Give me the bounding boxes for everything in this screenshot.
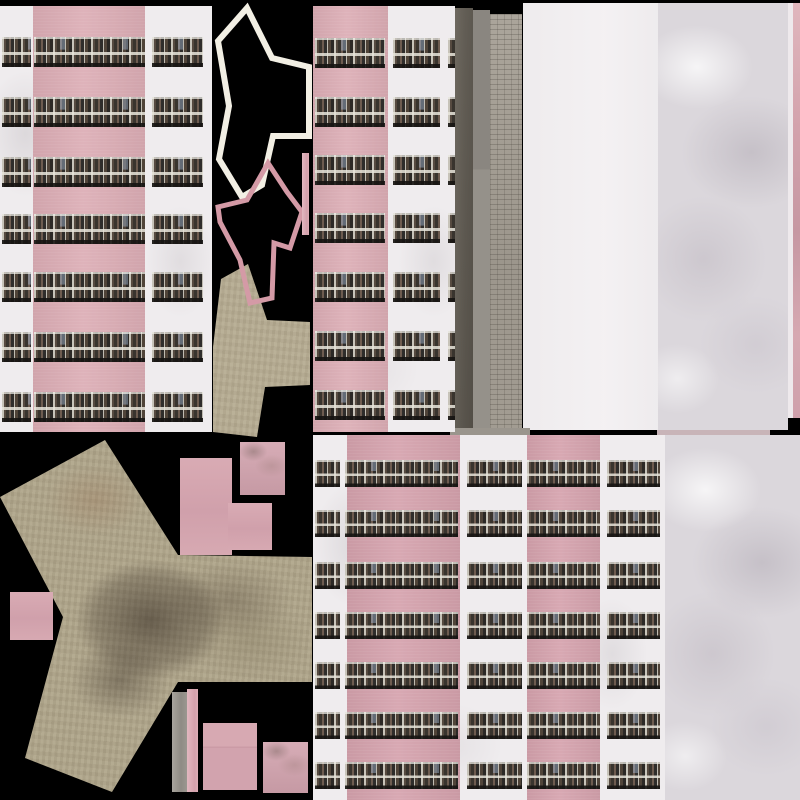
facade-middle-window-strip-r3-c1: [315, 155, 385, 185]
facade-bottom-window-strip-r2-c2: [345, 510, 458, 537]
marble-panel-top-right: [658, 3, 788, 430]
facade-bottom-window-strip-r2-c5: [607, 510, 660, 537]
facade-bottom-window-strip-r6-c2: [345, 712, 458, 739]
pink-rect-4: [10, 592, 53, 640]
facade-bottom-window-strip-r2-c3: [467, 510, 522, 537]
facade-bottom-window-strip-r1-c1: [315, 460, 340, 487]
facade-middle-window-strip-r3-c3: [448, 155, 455, 185]
facade-middle-window-strip-r6-c3: [448, 331, 455, 361]
facade-bottom-window-strip-r4-c5: [607, 612, 660, 639]
pink-edge-strip: [793, 3, 800, 418]
facade-bottom-window-strip-r5-c3: [467, 662, 522, 689]
facade-bottom-window-strip-r1-c5: [607, 460, 660, 487]
facade-left-window-strip-r6-c1: [2, 332, 31, 362]
facade-left-window-strip-r3-c2: [34, 157, 145, 187]
facade-bottom-window-strip-r1-c2: [345, 460, 458, 487]
facade-left-window-strip-r7-c1: [2, 392, 31, 422]
facade-left-window-strip-r5-c1: [2, 272, 31, 302]
facade-left-window-strip-r4-c2: [34, 214, 145, 244]
facade-left-window-strip-r1-c1: [2, 37, 31, 67]
facade-bottom-window-strip-r5-c5: [607, 662, 660, 689]
facade-bottom-window-strip-r3-c5: [607, 562, 660, 589]
pink-rect-1: [180, 458, 232, 555]
facade-middle-window-strip-r2-c2: [393, 97, 440, 127]
facade-bottom-window-strip-r3-c3: [467, 562, 522, 589]
facade-bottom-window-strip-r3-c1: [315, 562, 340, 589]
facade-middle: [313, 6, 455, 432]
facade-middle-window-strip-r2-c1: [315, 97, 385, 127]
gray-bar-bottom: [172, 692, 187, 792]
facade-middle-window-strip-r7-c3: [448, 390, 455, 420]
white-slab-panel: [523, 3, 658, 430]
facade-left-window-strip-r3-c1: [2, 157, 31, 187]
facade-bottom-window-strip-r6-c3: [467, 712, 522, 739]
pink-sliver-top: [657, 430, 770, 435]
facade-bottom-window-strip-r4-c3: [467, 612, 522, 639]
facade-middle-window-strip-r5-c2: [393, 272, 440, 302]
facade-middle-window-strip-r6-c2: [393, 331, 440, 361]
pink-rect-2: [240, 442, 285, 495]
facade-bottom-window-strip-r2-c1: [315, 510, 340, 537]
marble-panel-bottom-right: [665, 435, 800, 800]
facade-bottom-window-strip-r4-c1: [315, 612, 340, 639]
facade-bottom-window-strip-r5-c1: [315, 662, 340, 689]
facade-bottom-window-strip-r7-c1: [315, 762, 340, 789]
facade-left-window-strip-r4-c3: [152, 214, 203, 244]
facade-bottom-window-strip-r4-c4: [527, 612, 600, 639]
facade-bottom: [313, 435, 665, 800]
facade-bottom-window-strip-r7-c5: [607, 762, 660, 789]
facade-left-window-strip-r1-c2: [34, 37, 145, 67]
facade-bottom-window-strip-r7-c4: [527, 762, 600, 789]
facade-bottom-window-strip-r7-c3: [467, 762, 522, 789]
texture-atlas-canvas: [0, 0, 800, 800]
facade-left-window-strip-r7-c3: [152, 392, 203, 422]
facade-middle-window-strip-r3-c2: [393, 155, 440, 185]
gray-strip-smooth: [455, 8, 473, 430]
facade-bottom-window-strip-r6-c5: [607, 712, 660, 739]
facade-left-window-strip-r5-c2: [34, 272, 145, 302]
facade-bottom-window-strip-r6-c4: [527, 712, 600, 739]
facade-middle-window-strip-r7-c1: [315, 390, 385, 420]
gray-strip-dark: [473, 10, 490, 430]
facade-middle-window-strip-r5-c1: [315, 272, 385, 302]
pink-bar-bottom: [187, 689, 198, 792]
facade-middle-window-strip-r1-c2: [393, 38, 440, 68]
facade-left-window-strip-r1-c3: [152, 37, 203, 67]
facade-bottom-window-strip-r1-c3: [467, 460, 522, 487]
pink-rect-5: [203, 723, 257, 790]
facade-middle-window-strip-r4-c3: [448, 213, 455, 243]
facade-left-window-strip-r2-c2: [34, 97, 145, 127]
facade-left: [0, 6, 212, 432]
facade-bottom-window-strip-r1-c4: [527, 460, 600, 487]
facade-bottom-window-strip-r3-c2: [345, 562, 458, 589]
facade-left-window-strip-r3-c3: [152, 157, 203, 187]
facade-bottom-window-strip-r4-c2: [345, 612, 458, 639]
facade-middle-window-strip-r4-c1: [315, 213, 385, 243]
facade-middle-window-strip-r2-c3: [448, 97, 455, 127]
facade-middle-window-strip-r1-c3: [448, 38, 455, 68]
tiled-wall-strip: [490, 14, 522, 430]
pink-rect-6: [263, 742, 308, 793]
facade-middle-window-strip-r5-c3: [448, 272, 455, 302]
pink-bar-vertical: [302, 153, 309, 235]
facade-bottom-window-strip-r7-c2: [345, 762, 458, 789]
facade-bottom-window-strip-r3-c4: [527, 562, 600, 589]
facade-left-window-strip-r2-c3: [152, 97, 203, 127]
facade-bottom-window-strip-r2-c4: [527, 510, 600, 537]
facade-left-window-strip-r4-c1: [2, 214, 31, 244]
facade-bottom-window-strip-r5-c2: [345, 662, 458, 689]
facade-left-window-strip-r7-c2: [34, 392, 145, 422]
facade-middle-window-strip-r7-c2: [393, 390, 440, 420]
facade-bottom-window-strip-r6-c1: [315, 712, 340, 739]
pink-rect-3: [228, 503, 272, 550]
facade-middle-window-strip-r6-c1: [315, 331, 385, 361]
facade-left-window-strip-r6-c2: [34, 332, 145, 362]
facade-bottom-window-strip-r5-c4: [527, 662, 600, 689]
facade-left-window-strip-r6-c3: [152, 332, 203, 362]
facade-left-window-strip-r2-c1: [2, 97, 31, 127]
facade-middle-window-strip-r4-c2: [393, 213, 440, 243]
facade-left-window-strip-r5-c3: [152, 272, 203, 302]
facade-middle-window-strip-r1-c1: [315, 38, 385, 68]
